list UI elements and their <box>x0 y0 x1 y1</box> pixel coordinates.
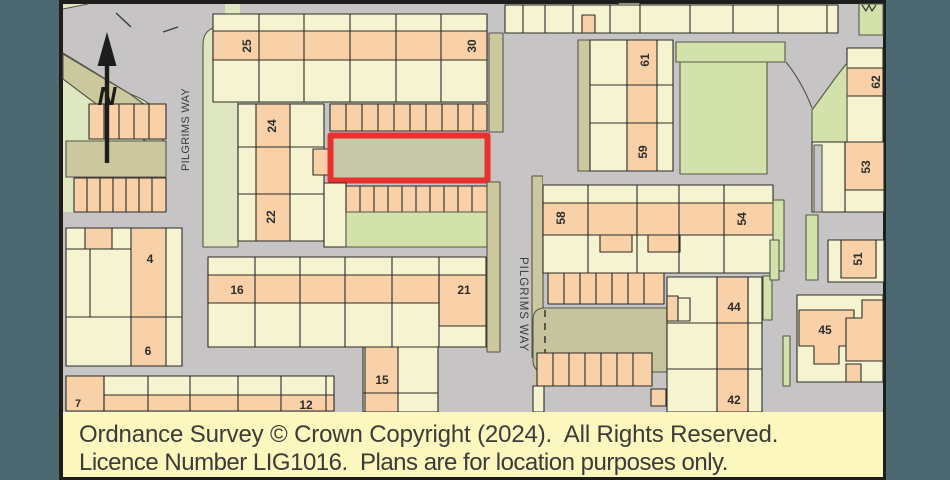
svg-text:51: 51 <box>851 252 865 266</box>
svg-text:58: 58 <box>554 211 568 225</box>
svg-text:PILGRIMS WAY: PILGRIMS WAY <box>180 88 192 171</box>
svg-text:Licence Number LIG1016. Plans: Licence Number LIG1016. Plans are for lo… <box>79 449 728 476</box>
svg-text:62: 62 <box>869 75 883 89</box>
svg-text:25: 25 <box>240 39 254 53</box>
svg-text:PILGRIMS WAY: PILGRIMS WAY <box>517 257 529 352</box>
svg-text:61: 61 <box>638 53 652 67</box>
svg-text:15: 15 <box>375 373 389 387</box>
svg-text:30: 30 <box>465 39 479 53</box>
svg-text:53: 53 <box>859 160 873 174</box>
svg-text:42: 42 <box>727 393 741 407</box>
svg-text:4: 4 <box>147 252 154 266</box>
svg-text:44: 44 <box>727 300 741 314</box>
svg-text:54: 54 <box>735 212 749 226</box>
svg-text:7: 7 <box>75 398 81 410</box>
svg-text:21: 21 <box>457 283 471 297</box>
svg-text:6: 6 <box>145 344 152 358</box>
svg-text:16: 16 <box>230 283 244 297</box>
svg-text:24: 24 <box>265 119 279 133</box>
svg-text:Ordnance Survey © Crown Copyri: Ordnance Survey © Crown Copyright (2024)… <box>79 421 778 448</box>
svg-text:12: 12 <box>299 398 313 412</box>
svg-text:59: 59 <box>636 145 650 159</box>
svg-text:22: 22 <box>264 210 278 224</box>
svg-text:45: 45 <box>818 323 832 337</box>
